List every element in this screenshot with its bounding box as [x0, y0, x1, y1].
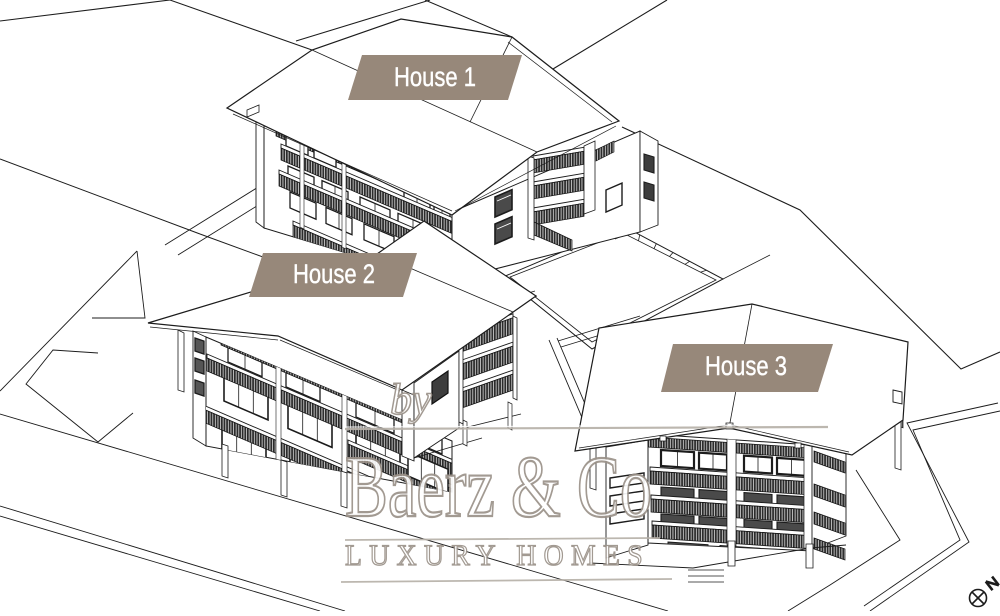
- svg-text:Baerz & Co: Baerz & Co: [345, 439, 652, 536]
- svg-text:LUXURY HOMES: LUXURY HOMES: [345, 539, 650, 572]
- svg-text:by: by: [390, 375, 432, 424]
- svg-text:House 3: House 3: [705, 351, 787, 381]
- svg-text:House 2: House 2: [293, 259, 375, 289]
- svg-text:House 1: House 1: [394, 62, 476, 92]
